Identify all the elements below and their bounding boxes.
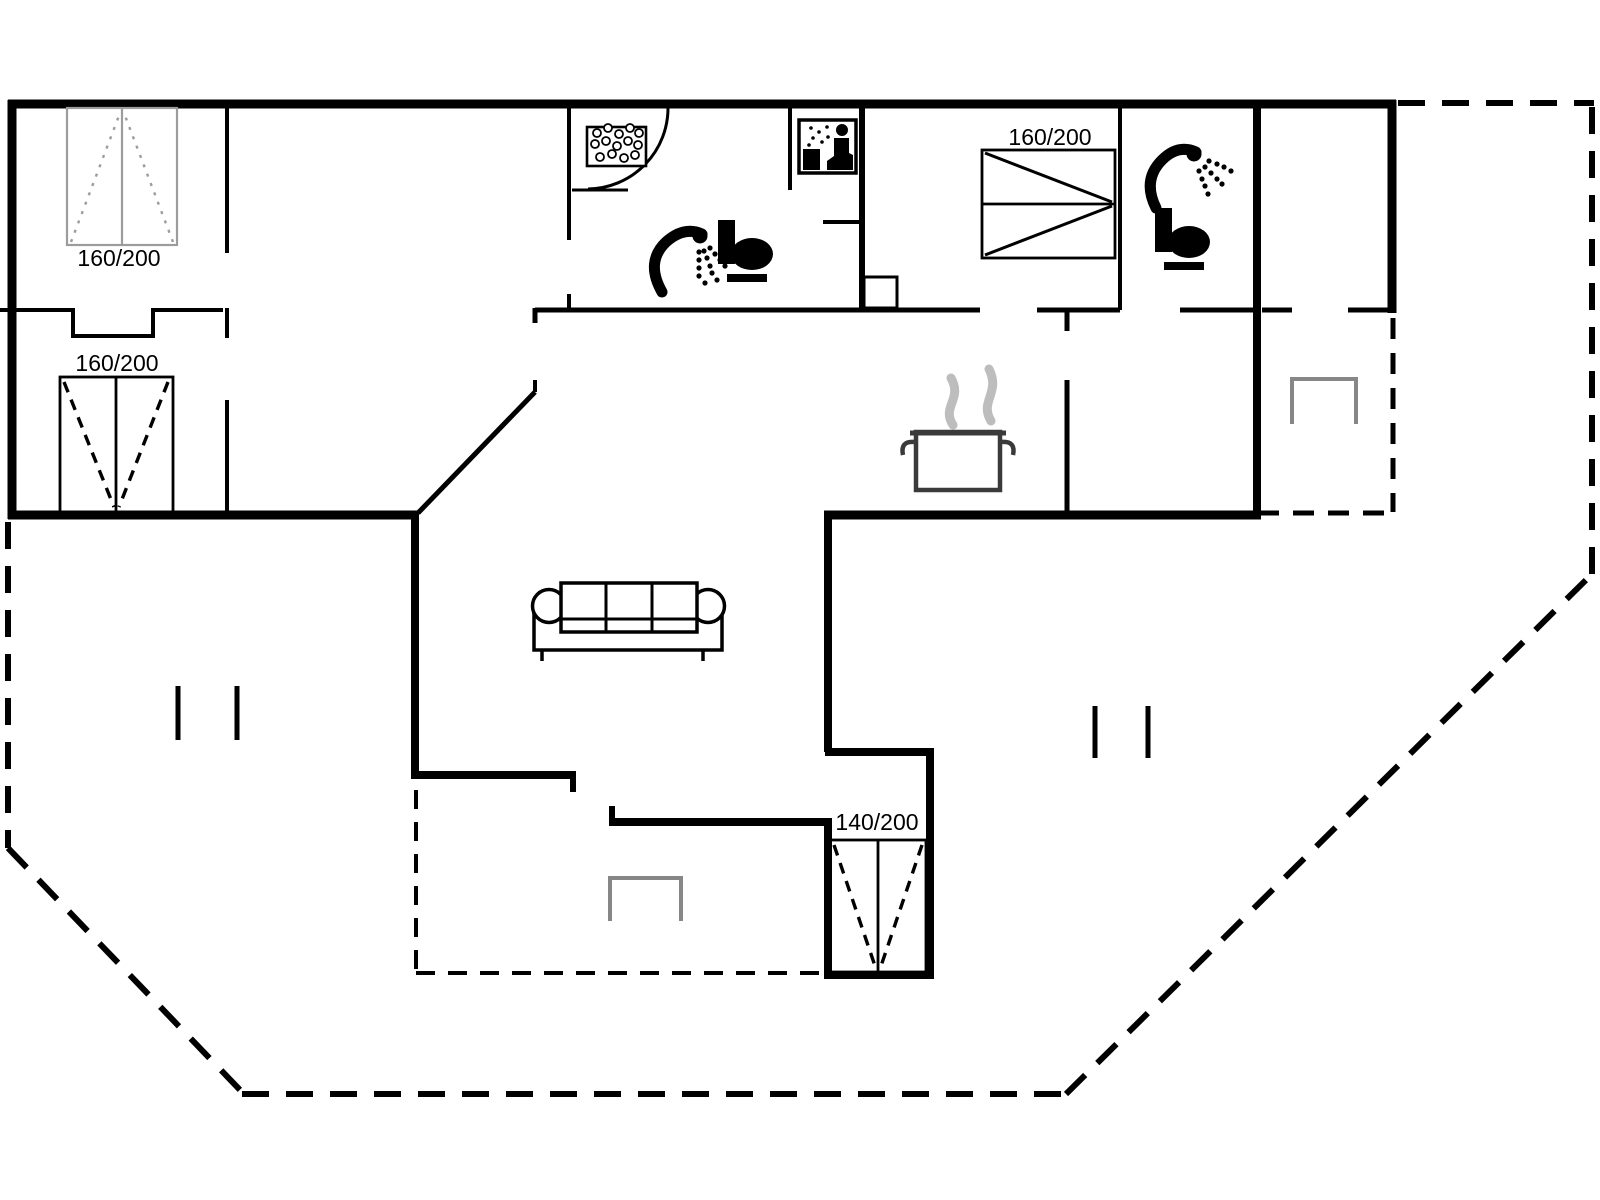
cooking-pot-icon [902,369,1013,490]
chimney-flue [864,277,897,308]
toilet-icon [718,220,773,282]
shower-icon [654,229,727,293]
terrace-dashed-outline [8,103,1594,1094]
bed-size-label: 160/200 [1008,124,1091,150]
shower-icon [1150,147,1233,209]
bed-size-label: 160/200 [77,245,160,271]
steam-icon [949,378,954,425]
floor-plan-drawing: 160/200 160/200 160/200 140/200 [0,0,1600,1200]
sofa-icon [533,583,725,661]
bed-size-label: 140/200 [835,809,918,835]
bed-top-left-icon [67,108,177,245]
bed-south-icon [830,840,926,972]
floor-plan-canvas: 160/200 160/200 160/200 140/200 [0,0,1600,1200]
terrace-posts [178,686,1148,758]
sauna-icon [799,120,856,173]
bed-mid-left-icon [60,377,173,514]
toilet-icon [1155,208,1210,270]
bed-top-right-icon [982,150,1115,258]
steam-icon [987,369,992,421]
covered-terrace-dashed [416,318,1393,973]
bed-size-label: 160/200 [75,350,158,376]
interior-walls [0,100,1392,515]
whirlpool-tub-icon [587,124,646,166]
